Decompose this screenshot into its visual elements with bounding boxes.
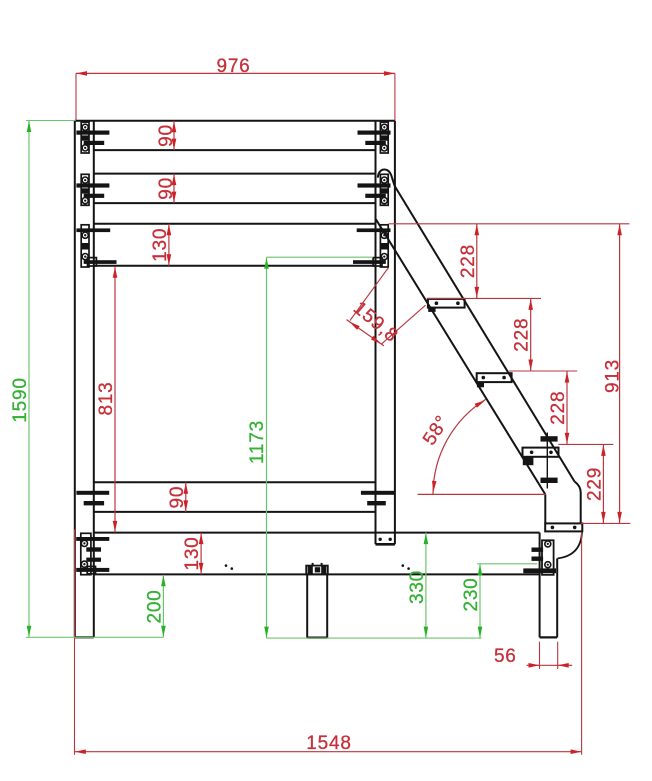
svg-text:228: 228 xyxy=(458,244,479,278)
svg-text:229: 229 xyxy=(584,467,605,501)
svg-text:90: 90 xyxy=(156,177,177,200)
svg-text:56: 56 xyxy=(494,646,517,667)
svg-text:130: 130 xyxy=(182,536,203,570)
svg-text:1173: 1173 xyxy=(247,420,268,464)
svg-text:813: 813 xyxy=(96,381,117,415)
svg-text:230: 230 xyxy=(461,577,482,611)
svg-text:330: 330 xyxy=(407,570,428,604)
svg-text:976: 976 xyxy=(216,56,250,77)
svg-text:1590: 1590 xyxy=(10,377,31,422)
svg-text:200: 200 xyxy=(144,589,165,623)
svg-text:1548: 1548 xyxy=(306,733,351,754)
svg-text:228: 228 xyxy=(512,318,533,352)
svg-text:90: 90 xyxy=(167,486,188,509)
svg-text:913: 913 xyxy=(603,359,624,393)
svg-text:130: 130 xyxy=(150,228,171,262)
svg-text:90: 90 xyxy=(156,124,177,147)
svg-text:228: 228 xyxy=(548,391,569,425)
